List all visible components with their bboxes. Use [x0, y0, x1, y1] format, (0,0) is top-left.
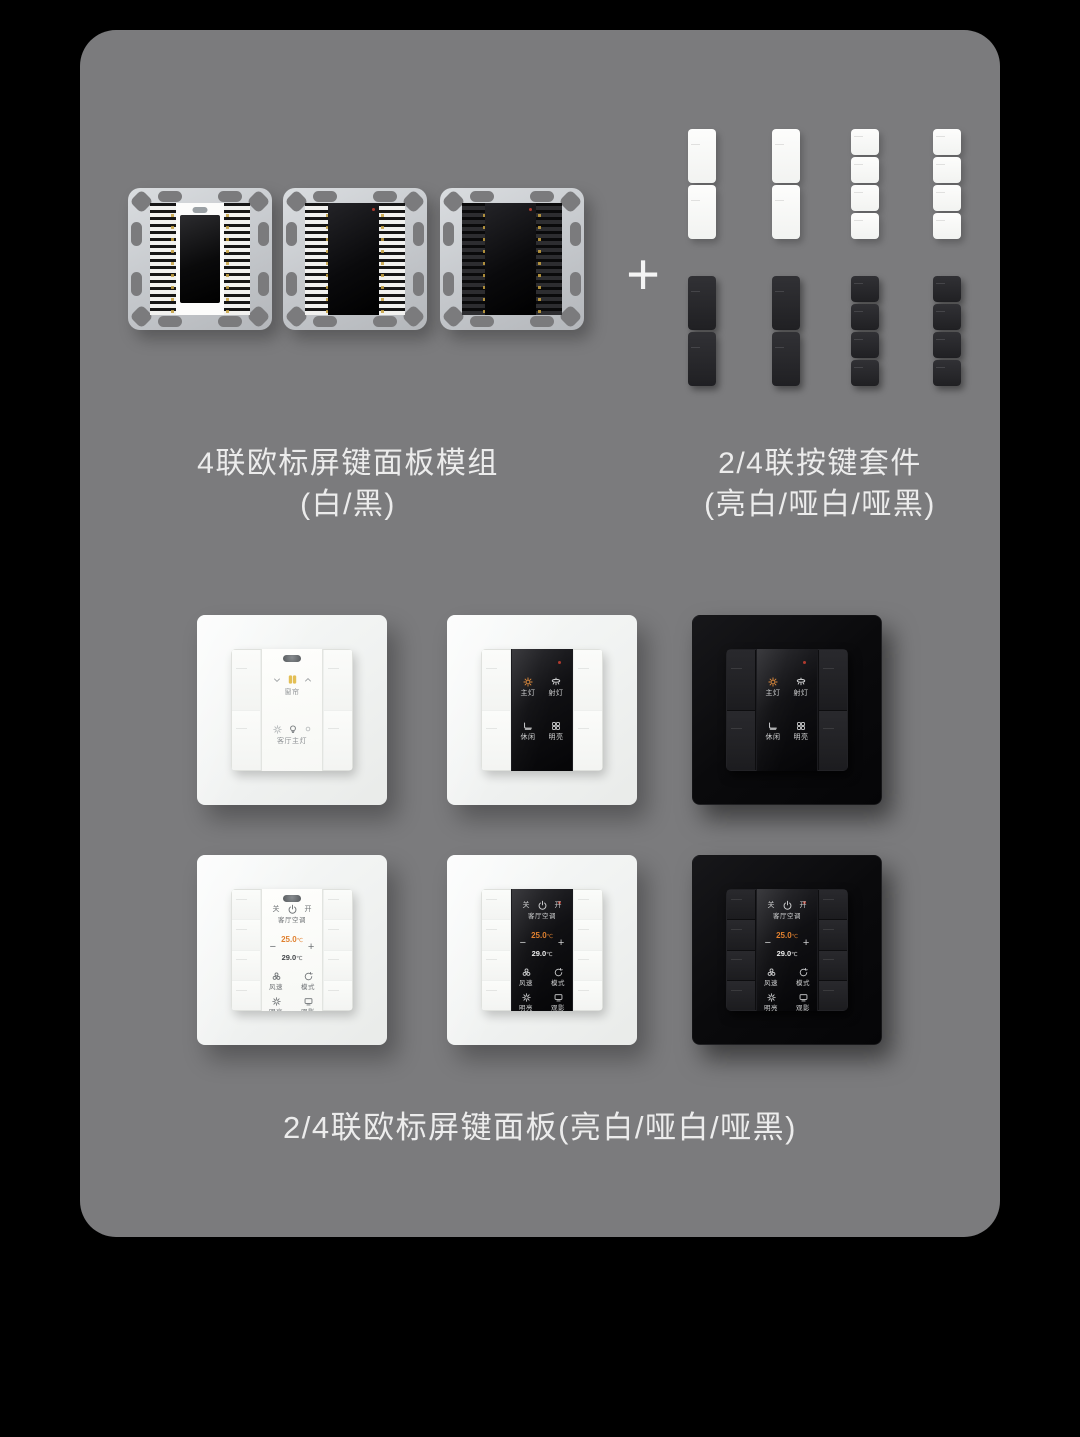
- plus-label: +: [803, 938, 809, 949]
- main-light-cell: 主灯: [766, 676, 781, 698]
- key-column-left: [481, 649, 511, 771]
- frame-cutout: [413, 222, 424, 246]
- light-icon-row: [262, 723, 322, 735]
- key-cap: [933, 276, 961, 302]
- rocker-key: [324, 951, 352, 980]
- movie-label: 观影: [551, 1005, 565, 1011]
- panel-black-8key: 关 开 客厅空调 − 25.0℃ 29.0℃ +: [692, 855, 882, 1045]
- set-temp: 25.0℃: [531, 931, 553, 940]
- tv-icon: [303, 996, 314, 1007]
- pendant-bulb-icon: [287, 723, 299, 735]
- spot-light-label: 射灯: [549, 690, 564, 698]
- leisure-cell: 休闲: [766, 720, 781, 742]
- key-column-left: [231, 889, 261, 1011]
- set-temp: 25.0℃: [776, 931, 798, 940]
- keycap-column-black-4gang: [933, 276, 961, 386]
- mode-icon: [303, 971, 314, 982]
- leisure-icon: [767, 720, 779, 732]
- frame-cutout: [158, 191, 182, 202]
- connector-pins-left: [150, 203, 176, 315]
- frame-cutout: [570, 272, 581, 296]
- frame-cutout: [286, 272, 297, 296]
- fan-cell: 风速: [758, 967, 784, 988]
- room-temp: 29.0℃: [282, 953, 303, 962]
- frame-cutout: [530, 316, 554, 327]
- sun-icon: [521, 992, 532, 1003]
- sun-icon: [766, 992, 777, 1003]
- status-led: [529, 208, 532, 211]
- key-column-right: [323, 889, 353, 1011]
- frame-cutout: [131, 272, 142, 296]
- movie-label: 观影: [796, 1005, 810, 1011]
- rocker-key: [819, 650, 847, 710]
- gray-card: +: [80, 30, 1000, 1237]
- off-label: 关: [273, 906, 280, 914]
- keycap-column-black-4gang: [851, 276, 879, 386]
- keys-caption: 2/4联按键套件 (亮白/哑白/哑黑): [620, 443, 1020, 525]
- key-column-right: [573, 889, 603, 1011]
- on-label: 开: [800, 902, 807, 910]
- thermostat-screen: 关 开 客厅空调 − 25.0℃ 29.0℃ +: [512, 889, 572, 1011]
- mode-icon: [553, 967, 564, 978]
- off-label: 关: [768, 902, 775, 910]
- panel-white-glossy-8key: 关 开 客厅空调 − 25.0℃ 29.0℃ +: [197, 855, 387, 1045]
- key-column-left: [481, 889, 511, 1011]
- fan-label: 风速: [269, 984, 283, 992]
- frame-cutout: [313, 316, 337, 327]
- key-column-right: [818, 649, 848, 771]
- power-icon: [537, 900, 548, 911]
- keycap-column-white-2gang: [772, 129, 800, 239]
- rocker-key: [324, 711, 352, 771]
- screen-light: 关 开 客厅空调 − 25.0℃ 29.0℃ +: [261, 889, 323, 1011]
- frame-cutout: [373, 191, 397, 202]
- function-grid: 风速 模式 明亮 观影: [513, 967, 571, 1011]
- screen-glass: [328, 203, 382, 315]
- key-column-left: [726, 649, 756, 771]
- light-group: 客厅主灯: [262, 723, 322, 746]
- keys-caption-line1: 2/4联按键套件: [620, 443, 1020, 484]
- keys-caption-line2: (亮白/哑白/哑黑): [620, 484, 1020, 525]
- curtain-icon: [286, 673, 299, 686]
- key-cap: [851, 185, 879, 211]
- key-cap: [772, 185, 800, 239]
- fan-cell: 风速: [513, 967, 539, 988]
- leisure-icon: [522, 720, 534, 732]
- rocker-key: [482, 890, 510, 919]
- mode-cell: 模式: [545, 967, 571, 988]
- fan-icon: [271, 971, 282, 982]
- mode-cell: 模式: [295, 971, 321, 992]
- sensor-oval: [193, 207, 208, 213]
- movie-cell: 观影: [295, 996, 321, 1011]
- key-cap: [933, 332, 961, 358]
- connector-pins-right: [224, 203, 250, 315]
- thermostat-screen: 关 开 客厅空调 − 25.0℃ 29.0℃ +: [262, 889, 322, 1011]
- key-column-right: [323, 649, 353, 771]
- circle-icon: [303, 724, 313, 734]
- module-white-open: [128, 188, 272, 330]
- rocker-key: [819, 951, 847, 980]
- scene2-screen: 窗帘 客厅主灯: [262, 649, 322, 771]
- rocker-key: [819, 711, 847, 771]
- leisure-cell: 休闲: [521, 720, 536, 742]
- rocker-key: [574, 951, 602, 980]
- leisure-label: 休闲: [766, 734, 781, 742]
- keycap-column-white-2gang: [688, 129, 716, 239]
- fan-label: 风速: [764, 980, 778, 988]
- key-column-right: [818, 889, 848, 1011]
- light-label: 客厅主灯: [262, 737, 322, 746]
- rocker-key: [727, 920, 755, 949]
- function-grid: 风速 模式 明亮 观影: [263, 971, 321, 1011]
- frame-cutout: [470, 191, 494, 202]
- key-column-left: [231, 649, 261, 771]
- grid-icon: [550, 720, 562, 732]
- plus-label: +: [308, 942, 314, 953]
- rocker-key: [324, 890, 352, 919]
- bright-label: 明亮: [549, 734, 564, 742]
- plus-sign: +: [613, 245, 673, 305]
- status-led: [372, 208, 375, 211]
- frame-cutout: [373, 316, 397, 327]
- switch-body: 关 开 客厅空调 − 25.0℃ 29.0℃ +: [231, 889, 353, 1011]
- panel-white-glossy-4key: 窗帘 客厅主灯: [197, 615, 387, 805]
- frame-cutout: [443, 272, 454, 296]
- bright-label: 明亮: [269, 1009, 283, 1011]
- connector-pins-right: [536, 203, 562, 315]
- spot-light-cell: 射灯: [794, 676, 809, 698]
- keycap-column-white-4gang: [933, 129, 961, 239]
- rocker-key: [727, 711, 755, 771]
- rocker-key: [232, 650, 260, 710]
- screen-dark: 主灯 射灯 休闲 明亮: [511, 649, 573, 771]
- ac-title: 客厅空调: [278, 917, 306, 925]
- rocker-key: [574, 650, 602, 710]
- key-cap: [933, 213, 961, 239]
- sun-icon: [272, 724, 283, 735]
- keycap-column-black-2gang: [772, 276, 800, 386]
- bright-label: 明亮: [519, 1005, 533, 1011]
- screen-glass: [485, 203, 539, 315]
- rocker-key: [324, 981, 352, 1010]
- power-row: 关 开: [273, 904, 312, 915]
- switch-body: 主灯 射灯 休闲 明亮: [726, 649, 848, 771]
- module-face: [488, 203, 536, 315]
- minus-label: −: [520, 938, 526, 949]
- key-cap: [851, 360, 879, 386]
- module-white-screen: [283, 188, 427, 330]
- keycap-column-white-4gang: [851, 129, 879, 239]
- frame-cutout: [258, 222, 269, 246]
- key-column-left: [726, 889, 756, 1011]
- module-body: [150, 203, 250, 315]
- minus-label: −: [765, 938, 771, 949]
- main-light-label: 主灯: [521, 690, 536, 698]
- key-cap: [933, 185, 961, 211]
- panel-black-4key: 主灯 射灯 休闲 明亮: [692, 615, 882, 805]
- key-cap: [688, 332, 716, 386]
- frame-cutout: [218, 316, 242, 327]
- screen-dark: 关 开 客厅空调 − 25.0℃ 29.0℃ +: [756, 889, 818, 1011]
- screen-window: [180, 215, 220, 303]
- product-showcase: +: [0, 0, 1080, 1437]
- bright-cell: 明亮: [758, 992, 784, 1011]
- plus-label: +: [558, 938, 564, 949]
- panel-white-dark-screen-4key: 主灯 射灯 休闲 明亮: [447, 615, 637, 805]
- key-cap: [933, 129, 961, 155]
- temp-row: − 25.0℃ 29.0℃ +: [765, 925, 810, 961]
- mode-cell: 模式: [790, 967, 816, 988]
- key-cap: [772, 332, 800, 386]
- main-light-label: 主灯: [766, 690, 781, 698]
- spot-light-label: 射灯: [794, 690, 809, 698]
- on-label: 开: [555, 902, 562, 910]
- screen-light: 窗帘 客厅主灯: [261, 649, 323, 771]
- temp-values: 25.0℃ 29.0℃: [531, 925, 553, 961]
- power-icon: [782, 900, 793, 911]
- rocker-key: [819, 920, 847, 949]
- sun-icon: [767, 676, 779, 688]
- ceiling-light-icon: [550, 676, 562, 688]
- rocker-key: [324, 920, 352, 949]
- minus-label: −: [270, 942, 276, 953]
- rocker-key: [482, 981, 510, 1010]
- bright-cell: 明亮: [513, 992, 539, 1011]
- tv-icon: [553, 992, 564, 1003]
- movie-cell: 观影: [790, 992, 816, 1011]
- switch-body: 窗帘 客厅主灯: [231, 649, 353, 771]
- ac-title: 客厅空调: [528, 913, 556, 921]
- on-label: 开: [305, 906, 312, 914]
- rocker-key: [574, 981, 602, 1010]
- frame-cutout: [158, 316, 182, 327]
- rocker-key: [232, 890, 260, 919]
- frame-cutout: [570, 222, 581, 246]
- rocker-key: [232, 920, 260, 949]
- rocker-key: [482, 650, 510, 710]
- mode-label: 模式: [551, 980, 565, 988]
- connector-pins-right: [379, 203, 405, 315]
- fan-icon: [766, 967, 777, 978]
- modules-caption: 4联欧标屏键面板模组 (白/黑): [98, 443, 598, 525]
- main-light-cell: 主灯: [521, 676, 536, 698]
- rocker-key: [232, 951, 260, 980]
- bright-cell: 明亮: [549, 720, 564, 742]
- curtain-group: 窗帘: [262, 673, 322, 697]
- movie-cell: 观影: [545, 992, 571, 1011]
- panels-caption: 2/4联欧标屏键面板(亮白/哑白/哑黑): [80, 1102, 1000, 1147]
- set-temp: 25.0℃: [281, 935, 303, 944]
- chevron-up-icon: [303, 675, 313, 685]
- key-cap: [688, 185, 716, 239]
- curtain-label: 窗帘: [262, 688, 322, 697]
- temp-row: − 25.0℃ 29.0℃ +: [270, 929, 315, 965]
- frame-cutout: [131, 222, 142, 246]
- module-body: [305, 203, 405, 315]
- modules-caption-line2: (白/黑): [98, 484, 598, 525]
- sun-icon: [522, 676, 534, 688]
- module-body: [462, 203, 562, 315]
- screen-dark: 关 开 客厅空调 − 25.0℃ 29.0℃ +: [511, 889, 573, 1011]
- movie-label: 观影: [301, 1009, 315, 1011]
- rocker-key: [482, 951, 510, 980]
- scene4-screen: 主灯 射灯 休闲 明亮: [757, 649, 817, 771]
- mode-label: 模式: [796, 980, 810, 988]
- room-temp: 29.0℃: [532, 949, 553, 958]
- frame-cutout: [286, 222, 297, 246]
- key-cap: [851, 157, 879, 183]
- sun-icon: [271, 996, 282, 1007]
- rocker-key: [727, 650, 755, 710]
- mode-icon: [798, 967, 809, 978]
- key-cap: [772, 276, 800, 330]
- key-cap: [688, 129, 716, 183]
- frame-cutout: [258, 272, 269, 296]
- rocker-key: [727, 951, 755, 980]
- key-cap: [851, 332, 879, 358]
- temp-values: 25.0℃ 29.0℃: [776, 925, 798, 961]
- mode-label: 模式: [301, 984, 315, 992]
- key-cap: [851, 129, 879, 155]
- key-cap: [851, 304, 879, 330]
- frame-cutout: [313, 191, 337, 202]
- chevron-down-icon: [272, 675, 282, 685]
- tv-icon: [798, 992, 809, 1003]
- rocker-key: [482, 711, 510, 771]
- temp-row: − 25.0℃ 29.0℃ +: [520, 925, 565, 961]
- module-face: [331, 203, 379, 315]
- bright-label: 明亮: [764, 1005, 778, 1011]
- power-icon: [287, 904, 298, 915]
- rocker-key: [727, 890, 755, 919]
- leisure-label: 休闲: [521, 734, 536, 742]
- key-cap: [772, 129, 800, 183]
- curtain-icon-row: [262, 673, 322, 686]
- modules-caption-line1: 4联欧标屏键面板模组: [98, 443, 598, 484]
- key-column-right: [573, 649, 603, 771]
- power-row: 关 开: [523, 900, 562, 911]
- spot-light-cell: 射灯: [549, 676, 564, 698]
- function-grid: 风速 模式 明亮 观影: [758, 967, 816, 1011]
- thermostat-screen: 关 开 客厅空调 − 25.0℃ 29.0℃ +: [757, 889, 817, 1011]
- off-label: 关: [523, 902, 530, 910]
- rocker-key: [232, 711, 260, 771]
- ac-title: 客厅空调: [773, 913, 801, 921]
- screen-dark: 主灯 射灯 休闲 明亮: [756, 649, 818, 771]
- fan-icon: [521, 967, 532, 978]
- key-cap: [851, 276, 879, 302]
- key-cap: [933, 360, 961, 386]
- fan-label: 风速: [519, 980, 533, 988]
- rocker-key: [574, 890, 602, 919]
- grid-icon: [795, 720, 807, 732]
- key-cap: [933, 304, 961, 330]
- bright-cell: 明亮: [263, 996, 289, 1011]
- ceiling-light-icon: [795, 676, 807, 688]
- power-row: 关 开: [768, 900, 807, 911]
- room-temp: 29.0℃: [777, 949, 798, 958]
- key-cap: [851, 213, 879, 239]
- rocker-key: [727, 981, 755, 1010]
- rocker-key: [819, 981, 847, 1010]
- switch-body: 关 开 客厅空调 − 25.0℃ 29.0℃ +: [481, 889, 603, 1011]
- switch-body: 关 开 客厅空调 − 25.0℃ 29.0℃ +: [726, 889, 848, 1011]
- frame-cutout: [443, 222, 454, 246]
- keycap-column-black-2gang: [688, 276, 716, 386]
- rocker-key: [819, 890, 847, 919]
- frame-cutout: [470, 316, 494, 327]
- key-cap: [933, 157, 961, 183]
- frame-cutout: [413, 272, 424, 296]
- panel-white-dark-screen-8key: 关 开 客厅空调 − 25.0℃ 29.0℃ +: [447, 855, 637, 1045]
- rocker-key: [574, 711, 602, 771]
- rocker-key: [232, 981, 260, 1010]
- key-cap: [688, 276, 716, 330]
- rocker-key: [482, 920, 510, 949]
- fan-cell: 风速: [263, 971, 289, 992]
- scene4-screen: 主灯 射灯 休闲 明亮: [512, 649, 572, 771]
- rocker-key: [324, 650, 352, 710]
- bright-label: 明亮: [794, 734, 809, 742]
- bright-cell: 明亮: [794, 720, 809, 742]
- module-black-screen: [440, 188, 584, 330]
- rocker-key: [574, 920, 602, 949]
- frame-cutout: [218, 191, 242, 202]
- frame-cutout: [530, 191, 554, 202]
- module-face: [176, 203, 224, 315]
- temp-values: 25.0℃ 29.0℃: [281, 929, 303, 965]
- switch-body: 主灯 射灯 休闲 明亮: [481, 649, 603, 771]
